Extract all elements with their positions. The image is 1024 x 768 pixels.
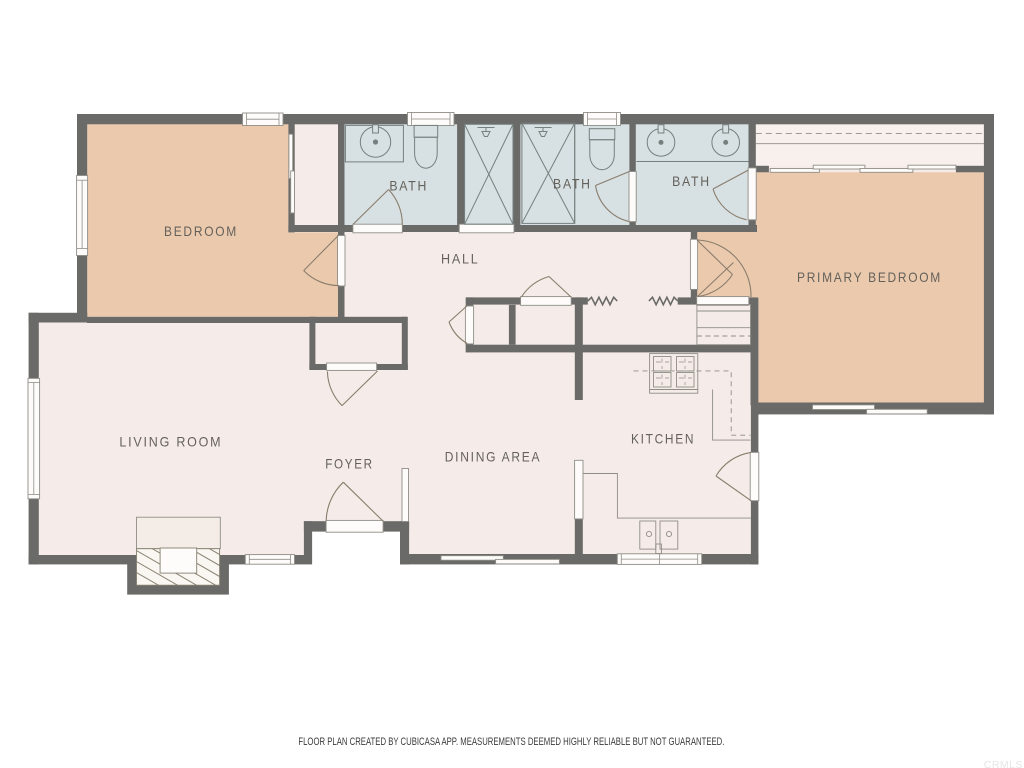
svg-text:BATH: BATH (553, 176, 592, 192)
svg-text:BATH: BATH (672, 173, 711, 189)
svg-text:CRMLS: CRMLS (984, 759, 1023, 768)
svg-text:PRIMARY BEDROOM: PRIMARY BEDROOM (797, 269, 942, 285)
svg-text:LIVING ROOM: LIVING ROOM (119, 434, 222, 450)
svg-text:HALL: HALL (441, 251, 480, 267)
svg-text:KITCHEN: KITCHEN (631, 431, 695, 447)
svg-text:DINING AREA: DINING AREA (445, 449, 542, 465)
svg-text:FOYER: FOYER (325, 456, 374, 472)
svg-text:BATH: BATH (389, 178, 428, 194)
svg-text:FLOOR PLAN CREATED BY CUBICASA: FLOOR PLAN CREATED BY CUBICASA APP. MEAS… (298, 736, 724, 748)
svg-text:BEDROOM: BEDROOM (164, 223, 238, 239)
